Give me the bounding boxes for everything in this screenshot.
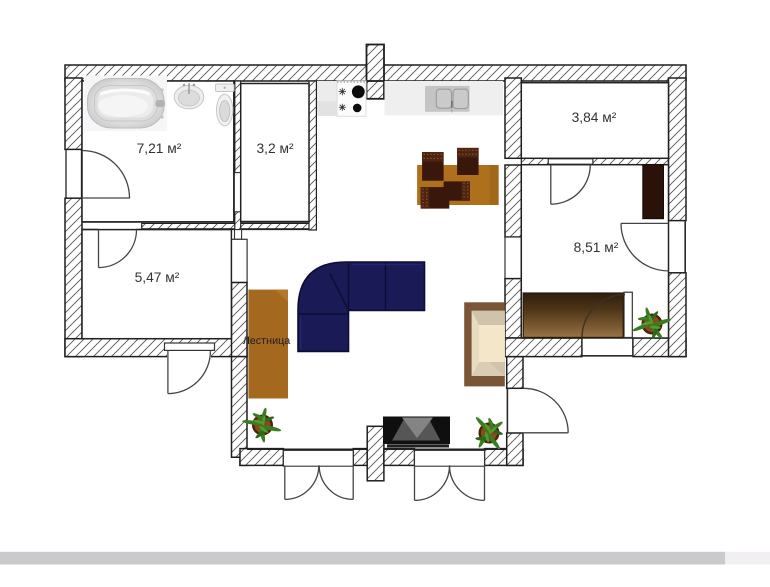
svg-text:5,47 м²: 5,47 м² bbox=[135, 270, 180, 285]
svg-text:3,84 м²: 3,84 м² bbox=[572, 110, 617, 125]
svg-text:3,2 м²: 3,2 м² bbox=[256, 141, 293, 156]
svg-text:8,51 м²: 8,51 м² bbox=[574, 240, 619, 255]
svg-text:7,21 м²: 7,21 м² bbox=[137, 141, 182, 156]
svg-text:Лестница: Лестница bbox=[243, 335, 291, 347]
